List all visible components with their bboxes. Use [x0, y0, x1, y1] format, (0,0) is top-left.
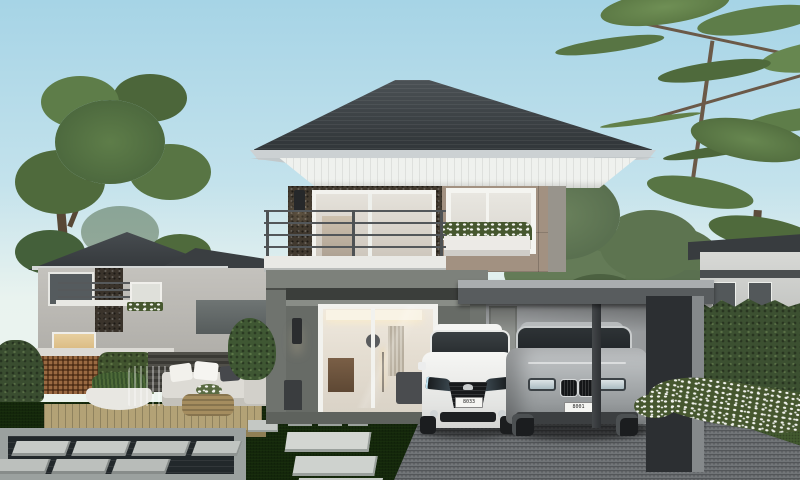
stepping-stone — [191, 441, 242, 456]
balcony-railing-post — [266, 210, 269, 258]
wall-sconce-icon — [294, 190, 305, 212]
car-hood-crease — [528, 362, 626, 364]
ground-floor-fascia — [266, 270, 488, 288]
stepping-stone — [0, 459, 51, 474]
mailbox-pedestal — [284, 380, 302, 410]
walkway-paver-large — [285, 432, 372, 452]
car-headlight-icon — [598, 378, 626, 391]
stepping-stone — [51, 459, 110, 474]
balcony-railing — [264, 210, 446, 258]
white-sedan: 8033 — [422, 324, 514, 434]
stepping-stone — [71, 441, 130, 456]
plate-text: 8001 — [572, 404, 584, 410]
left-house-balcony-slab — [56, 300, 134, 306]
right-house-band — [700, 270, 800, 278]
plate-text: 8033 — [463, 399, 475, 405]
glass-reflection — [322, 306, 422, 408]
stepping-stone — [11, 441, 70, 456]
balcony-railing-post — [352, 210, 355, 258]
flower-bed-cluster — [634, 394, 676, 418]
stepping-stone — [131, 441, 190, 456]
balcony-railing-post — [440, 210, 443, 258]
taupe-wall-seam — [538, 186, 539, 272]
license-plate: 8033 — [455, 397, 483, 408]
car-lower-intake — [440, 412, 496, 422]
car-wheel — [512, 414, 534, 436]
car-headlight-icon — [528, 378, 556, 391]
rattan-coffee-table — [182, 394, 234, 416]
left-house-flowerbox — [127, 302, 163, 311]
silver-sedan: 8001 — [506, 322, 648, 436]
sofa-pillow — [169, 363, 193, 383]
wall-sconce-icon — [292, 318, 302, 344]
scene: 8033 8001 — [0, 0, 800, 480]
car-emblem-icon — [463, 384, 473, 390]
stepping-stone — [111, 459, 170, 474]
porch-header-shadow — [286, 288, 470, 300]
sofa-pillow — [193, 361, 219, 381]
car-wheel — [616, 414, 638, 436]
carport-post — [592, 302, 601, 428]
car-wheel — [420, 416, 436, 434]
roof-soffit — [272, 158, 644, 188]
car-mirror-icon — [418, 362, 426, 370]
walkway-paver-large — [292, 456, 378, 476]
tree-left-canopy — [55, 100, 165, 184]
kidney-grille-icon — [560, 379, 578, 397]
left-house-balcony-railing — [58, 282, 132, 302]
window-flower-box — [444, 236, 530, 256]
